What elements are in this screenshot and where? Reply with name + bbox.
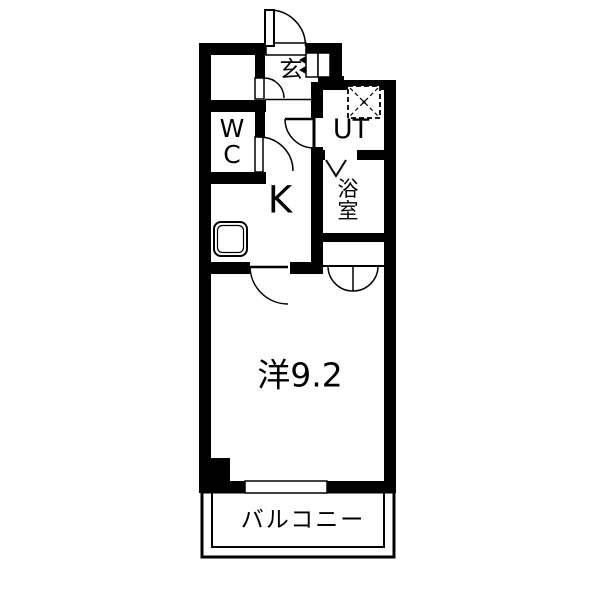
kitchen-label: K (268, 182, 292, 221)
wc-door-swing-icon (255, 137, 293, 172)
kitchen-sink-icon (214, 222, 247, 256)
bath-folding-door-icon (326, 160, 346, 176)
wall (311, 147, 323, 263)
shoe-cabinet-icon (299, 53, 330, 77)
entrance-door-swing-icon (265, 10, 306, 46)
balcony-label: バルコニー (241, 508, 366, 532)
wall (330, 43, 342, 80)
wall (311, 82, 323, 118)
wall (255, 112, 265, 137)
ut-door-swing-icon (285, 118, 314, 148)
wall (199, 172, 266, 184)
wall (311, 150, 325, 160)
main-room-label: 洋9.2 (257, 359, 342, 394)
toilet-label: WC (220, 116, 245, 168)
closet-double-door-icon (322, 266, 384, 291)
wall (384, 80, 396, 493)
wall (199, 100, 266, 112)
wall (255, 55, 265, 78)
entrance-label: 玄 (280, 58, 303, 82)
floor-plan: 玄 WC UT 浴室 K 洋9.2 バルコニー (0, 0, 600, 600)
utility-label: UT (333, 116, 369, 144)
wall (211, 458, 230, 483)
bathroom-label: 浴室 (338, 178, 359, 222)
wall (311, 233, 396, 242)
balcony-window-opening (245, 481, 327, 493)
wall (199, 262, 250, 274)
wall (290, 262, 323, 274)
wall (357, 150, 396, 160)
room-door-swing-icon (250, 266, 288, 304)
